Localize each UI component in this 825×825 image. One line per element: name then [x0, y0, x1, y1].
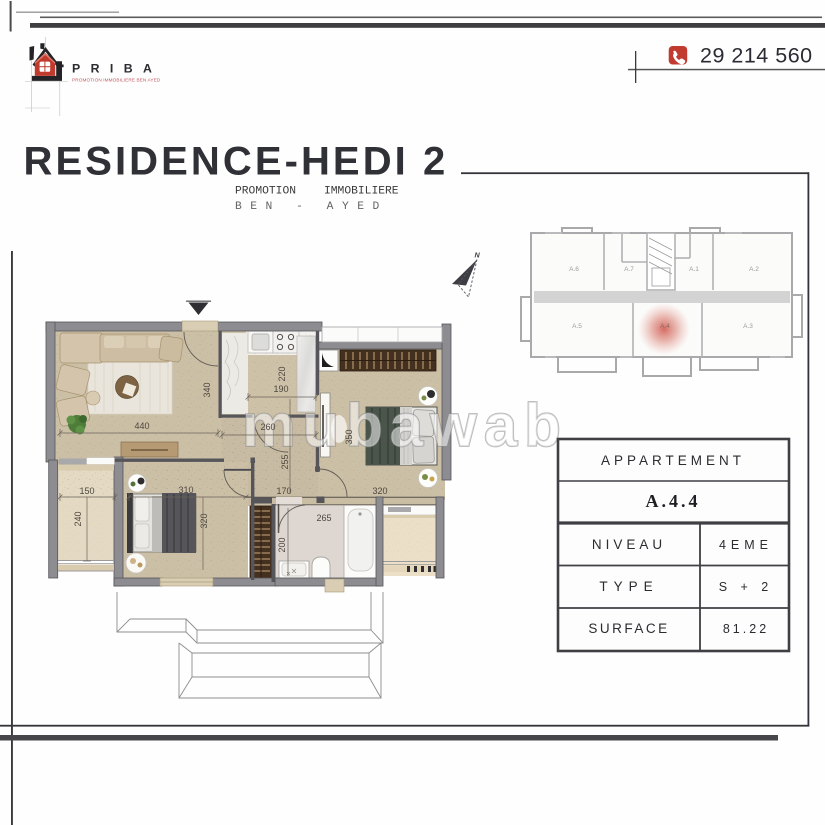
svg-text:A.4: A.4 [660, 323, 670, 330]
svg-text:320: 320 [372, 486, 387, 496]
svg-text:260: 260 [260, 422, 275, 432]
svg-text:A.7: A.7 [624, 266, 634, 273]
svg-text:TYPE: TYPE [599, 579, 658, 594]
svg-text:mubawab: mubawab [242, 392, 568, 459]
svg-text:440: 440 [134, 421, 149, 431]
svg-text:A.6: A.6 [569, 266, 579, 273]
svg-text:A.4.4: A.4.4 [646, 491, 701, 511]
svg-text:A.2: A.2 [749, 266, 759, 273]
svg-text:A.1: A.1 [689, 266, 699, 273]
svg-text:NIVEAU: NIVEAU [592, 537, 666, 552]
svg-text:4EME: 4EME [719, 538, 773, 552]
svg-text:S + 2: S + 2 [719, 580, 774, 594]
svg-text:255: 255 [280, 454, 290, 469]
svg-text:29 214 560: 29 214 560 [700, 44, 813, 68]
svg-text:APPARTEMENT: APPARTEMENT [601, 453, 745, 468]
svg-text:200: 200 [277, 537, 287, 552]
svg-text:SURFACE: SURFACE [588, 621, 669, 636]
svg-text:PROMOTION IMMOBILIERE BEN AYED: PROMOTION IMMOBILIERE BEN AYED [72, 77, 161, 82]
svg-text:RESIDENCE-HEDI 2: RESIDENCE-HEDI 2 [24, 140, 448, 184]
svg-text:81.22: 81.22 [723, 622, 769, 636]
svg-text:350: 350 [344, 429, 354, 444]
svg-text:265: 265 [316, 513, 331, 523]
svg-text:PROMOTION: PROMOTION [235, 185, 296, 197]
svg-text:IMMOBILIERE: IMMOBILIERE [324, 185, 399, 197]
svg-text:220: 220 [277, 366, 287, 381]
svg-text:190: 190 [273, 384, 288, 394]
svg-text:N: N [475, 251, 481, 260]
svg-text:A.3: A.3 [743, 323, 753, 330]
svg-text:340: 340 [202, 382, 212, 397]
svg-text:320: 320 [199, 513, 209, 528]
svg-text:BEN - AYED: BEN - AYED [235, 201, 388, 213]
svg-text:150: 150 [79, 486, 94, 496]
svg-text:170: 170 [276, 486, 291, 496]
svg-text:240: 240 [73, 511, 83, 526]
svg-text:310: 310 [178, 485, 193, 495]
svg-text:PRIBA: PRIBA [72, 61, 162, 75]
svg-text:A.5: A.5 [572, 323, 582, 330]
